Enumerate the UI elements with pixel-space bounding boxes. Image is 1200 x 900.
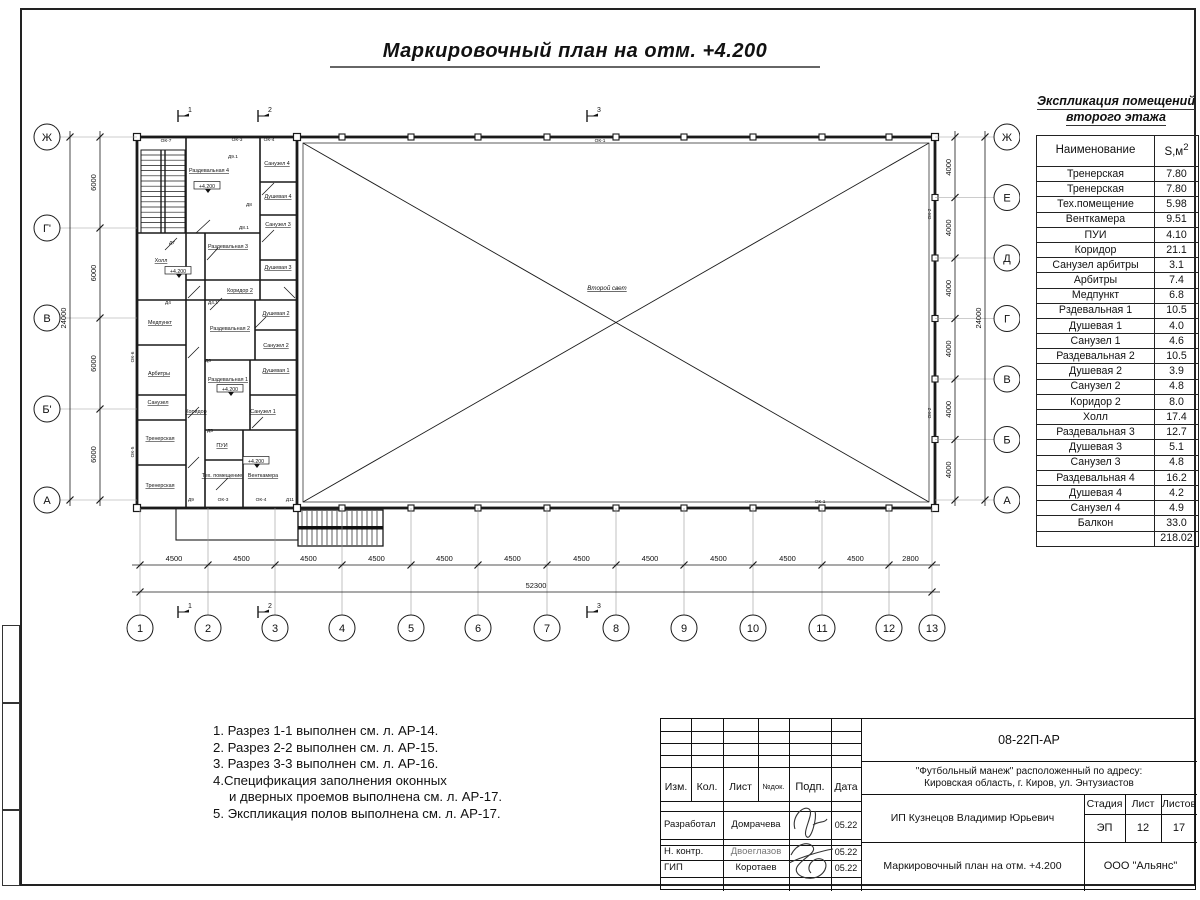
room-label: Душевая 3 bbox=[264, 265, 291, 271]
dim-label: 4000 bbox=[944, 340, 953, 357]
note-line: 3. Разрез 3-3 выполнен см. л. АР-16. bbox=[213, 756, 502, 773]
room-name: Раздевальная 3 bbox=[1037, 425, 1155, 440]
opening-tag: ОК-1 bbox=[815, 499, 826, 505]
dim-label: 4500 bbox=[300, 554, 317, 563]
explication-row: Санузел 24.8 bbox=[1037, 379, 1199, 394]
axis-label: 11 bbox=[816, 623, 827, 635]
opening-tag: ОК-1 bbox=[595, 138, 606, 144]
room-area: 4.8 bbox=[1155, 455, 1199, 470]
room-area: 8.0 bbox=[1155, 394, 1199, 409]
opening-tag: Д9 bbox=[188, 497, 194, 503]
tb-role-ncontr: Н. контр. bbox=[661, 845, 726, 860]
drawing-sheet: { "sheet": { "title": "Маркировочный пла… bbox=[0, 0, 1200, 900]
room-area: 3.9 bbox=[1155, 364, 1199, 379]
axis-label: 6 bbox=[475, 623, 481, 635]
axis-label: Б bbox=[1003, 435, 1010, 447]
dim-label: 4500 bbox=[642, 554, 659, 563]
tb-date-developer: 05.22 bbox=[831, 812, 861, 838]
page-title: Маркировочный план на отм. +4.200 bbox=[330, 40, 820, 68]
opening-tag: Д11 bbox=[286, 497, 295, 503]
room-label: Медпункт bbox=[148, 320, 173, 326]
room-label: Раздевальная 3 bbox=[208, 244, 248, 250]
room-area: 4.6 bbox=[1155, 334, 1199, 349]
room-area: 21.1 bbox=[1155, 242, 1199, 257]
col-header-area: S,м2 bbox=[1155, 136, 1199, 167]
axis-label: Г' bbox=[43, 223, 51, 235]
balcony bbox=[176, 508, 298, 540]
room-label: Санузел bbox=[148, 400, 169, 406]
axis-label: 3 bbox=[272, 623, 278, 635]
room-name: Арбитры bbox=[1037, 273, 1155, 288]
axis-label: 1 bbox=[137, 623, 143, 635]
room-name: Душевая 2 bbox=[1037, 364, 1155, 379]
note-line: 1. Разрез 1-1 выполнен см. л. АР-14. bbox=[213, 723, 502, 740]
axis-label: 12 bbox=[883, 623, 895, 635]
level-mark: +4.200 bbox=[199, 184, 215, 190]
tb-col-kol: Кол. bbox=[691, 774, 723, 800]
room-label: Коридор 2 bbox=[227, 288, 253, 294]
tb-project: "Футбольный манеж" расположенный по адре… bbox=[861, 761, 1197, 794]
axis-label: Ж bbox=[1002, 132, 1012, 144]
notes-list: 1. Разрез 1-1 выполнен см. л. АР-14.2. Р… bbox=[213, 723, 502, 822]
room-name: Коридор bbox=[1037, 242, 1155, 257]
dim-label: 6000 bbox=[89, 355, 98, 372]
axis-label: Ж bbox=[42, 132, 52, 144]
tb-date-ncontr: 05.22 bbox=[831, 845, 861, 860]
explication-row: Коридор21.1 bbox=[1037, 242, 1199, 257]
axis-label: Г bbox=[1004, 314, 1010, 326]
room-area: 218.02 bbox=[1155, 531, 1199, 546]
room-label: ПУИ bbox=[216, 443, 227, 449]
axis-label: Е bbox=[1003, 193, 1010, 205]
tb-name-developer: Домрачева bbox=[723, 812, 789, 838]
explication: Экспликация помещений второго этажа Наим… bbox=[1036, 94, 1196, 547]
note-line: 4.Спецификация заполнения оконных bbox=[213, 773, 502, 790]
explication-table: Наименование S,м2 Тренерская7.80Тренерск… bbox=[1036, 135, 1199, 547]
room-name: Раздевальная 4 bbox=[1037, 470, 1155, 485]
explication-row: Душевая 14.0 bbox=[1037, 318, 1199, 333]
tb-col-data: Дата bbox=[831, 774, 861, 800]
room-area: 4.0 bbox=[1155, 318, 1199, 333]
explication-row: Раздевальная 416.2 bbox=[1037, 470, 1199, 485]
room-name: Коридор 2 bbox=[1037, 394, 1155, 409]
tb-name-gip: Коротаев bbox=[723, 860, 789, 877]
explication-title: Экспликация помещений второго этажа bbox=[1036, 94, 1196, 126]
axis-label: 10 bbox=[747, 623, 759, 635]
explication-row: 218.02 bbox=[1037, 531, 1199, 546]
opening-tag: Д4.1 bbox=[208, 300, 218, 306]
room-name bbox=[1037, 531, 1155, 546]
dim-label: 6000 bbox=[89, 174, 98, 191]
tb-sheet-title: Маркировочный план на отм. +4.200 bbox=[861, 842, 1084, 891]
tb-date-gip: 05.22 bbox=[831, 860, 861, 877]
dim-label: 4500 bbox=[368, 554, 385, 563]
opening-tag: ОК-4 bbox=[256, 497, 267, 503]
opening-tag: ОК-2 bbox=[927, 407, 933, 418]
opening-tag: ОК-5 bbox=[130, 446, 136, 457]
axis-label: 9 bbox=[681, 623, 687, 635]
axis-label: А bbox=[1003, 495, 1011, 507]
room-area: 4.2 bbox=[1155, 485, 1199, 500]
room-area: 5.1 bbox=[1155, 440, 1199, 455]
room-area: 33.0 bbox=[1155, 516, 1199, 531]
room-area: 7.80 bbox=[1155, 167, 1199, 182]
axis-label: Б' bbox=[42, 404, 51, 416]
tb-col-podp: Подп. bbox=[789, 774, 831, 800]
axis-label: 4 bbox=[339, 623, 345, 635]
opening-tag: Д8.1 bbox=[239, 225, 249, 231]
explication-row: Раздевальная 312.7 bbox=[1037, 425, 1199, 440]
tb-client: ИП Кузнецов Владимир Юрьевич bbox=[861, 794, 1084, 842]
explication-row: Тех.помещение5.98 bbox=[1037, 197, 1199, 212]
explication-row: Тренерская7.80 bbox=[1037, 167, 1199, 182]
explication-row: Медпункт6.8 bbox=[1037, 288, 1199, 303]
section-mark-label: 1 bbox=[188, 107, 192, 114]
room-area: 3.1 bbox=[1155, 258, 1199, 273]
room-label: Раздевальная 4 bbox=[189, 168, 229, 174]
opening-tag: ОК-6 bbox=[130, 351, 136, 362]
explication-row: Арбитры7.4 bbox=[1037, 273, 1199, 288]
room-label: Тренерская bbox=[145, 436, 174, 442]
note-line: 5. Экспликация полов выполнена см. л. АР… bbox=[213, 806, 502, 823]
room-area: 4.9 bbox=[1155, 501, 1199, 516]
opening-tag: Д7 bbox=[169, 240, 175, 246]
level-mark: +4.200 bbox=[170, 269, 186, 275]
dim-label: 4500 bbox=[166, 554, 183, 563]
section-mark-label: 3 bbox=[597, 603, 601, 610]
opening-tag: ОК-4 bbox=[264, 137, 275, 143]
axis-label: 2 bbox=[205, 623, 211, 635]
dim-label: 4500 bbox=[436, 554, 453, 563]
opening-tag: Д5 bbox=[207, 428, 213, 434]
explication-row: Рздевальная 110.5 bbox=[1037, 303, 1199, 318]
room-name: Рздевальная 1 bbox=[1037, 303, 1155, 318]
room-label: Раздевальная 2 bbox=[210, 326, 250, 332]
room-label: Арбитры bbox=[148, 371, 170, 377]
opening-tag: ОК-3 bbox=[218, 497, 229, 503]
tb-sheets-label: Листов bbox=[1161, 794, 1197, 814]
explication-row: Коридор 28.0 bbox=[1037, 394, 1199, 409]
explication-row: Санузел 34.8 bbox=[1037, 455, 1199, 470]
room-name: Балкон bbox=[1037, 516, 1155, 531]
room-name: Душевая 1 bbox=[1037, 318, 1155, 333]
opening-tag: Д4 bbox=[165, 300, 171, 306]
explication-row: Санузел арбитры3.1 bbox=[1037, 258, 1199, 273]
tb-col-izm: Изм. bbox=[661, 774, 691, 800]
room-area: 5.98 bbox=[1155, 197, 1199, 212]
room-name: Тренерская bbox=[1037, 182, 1155, 197]
dim-label: 4500 bbox=[710, 554, 727, 563]
room-area: 16.2 bbox=[1155, 470, 1199, 485]
explication-row: ПУИ4.10 bbox=[1037, 227, 1199, 242]
axis-label: 7 bbox=[544, 623, 550, 635]
tb-col-ndoc: №док. bbox=[758, 774, 789, 800]
dim-label: 4500 bbox=[233, 554, 250, 563]
tb-stage: ЭП bbox=[1084, 814, 1125, 842]
margin-box bbox=[2, 625, 20, 703]
margin-box bbox=[2, 703, 20, 810]
axis-label: 5 bbox=[408, 623, 414, 635]
room-area: 4.10 bbox=[1155, 227, 1199, 242]
axis-label: 8 bbox=[613, 623, 619, 635]
room-label: Холл bbox=[155, 258, 168, 264]
dim-label: 6000 bbox=[89, 446, 98, 463]
room-area: 7.80 bbox=[1155, 182, 1199, 197]
section-mark-label: 3 bbox=[597, 107, 601, 114]
room-label: Тренерская bbox=[145, 483, 174, 489]
room-name: Санузел 4 bbox=[1037, 501, 1155, 516]
explication-row: Душевая 44.2 bbox=[1037, 485, 1199, 500]
room-name: Санузел 1 bbox=[1037, 334, 1155, 349]
explication-row: Венткамера9.51 bbox=[1037, 212, 1199, 227]
room-label: Венткамера bbox=[248, 473, 278, 479]
opening-tag: Д8 bbox=[246, 202, 252, 208]
explication-row: Санузел 14.6 bbox=[1037, 334, 1199, 349]
dim-label: 2800 bbox=[902, 554, 919, 563]
explication-row: Душевая 35.1 bbox=[1037, 440, 1199, 455]
opening-tag: Д6 bbox=[205, 358, 211, 364]
title-block: Изм. Кол. Лист №док. Подп. Дата Разработ… bbox=[660, 718, 1196, 890]
tb-sheets: 17 bbox=[1161, 814, 1197, 842]
tb-role-developer: Разработал bbox=[661, 812, 726, 838]
note-line: 2. Разрез 2-2 выполнен см. л. АР-15. bbox=[213, 740, 502, 757]
room-name: Венткамера bbox=[1037, 212, 1155, 227]
opening-tag: ОК-2 bbox=[927, 208, 933, 219]
note-line: и дверных проемов выполнена см. л. АР-17… bbox=[213, 789, 502, 806]
room-label: Санузел 1 bbox=[250, 409, 276, 415]
level-mark: +4.200 bbox=[222, 387, 238, 393]
room-label: Санузел 3 bbox=[265, 222, 291, 228]
opening-tag: ОК-3 bbox=[232, 137, 243, 143]
building-outline bbox=[137, 137, 935, 508]
room-label: Коридор bbox=[185, 409, 206, 415]
room-area: 10.5 bbox=[1155, 303, 1199, 318]
explication-row: Санузел 44.9 bbox=[1037, 501, 1199, 516]
axis-label: 13 bbox=[926, 623, 938, 635]
room-label: Душевая 1 bbox=[262, 368, 289, 374]
room-name: Санузел арбитры bbox=[1037, 258, 1155, 273]
room-label: Тех. помещение bbox=[202, 473, 243, 479]
explication-row: Раздевальная 210.5 bbox=[1037, 349, 1199, 364]
tb-stage-label: Стадия bbox=[1084, 794, 1125, 814]
tb-col-list: Лист bbox=[723, 774, 758, 800]
room-name: Душевая 4 bbox=[1037, 485, 1155, 500]
axis-label: А bbox=[43, 495, 51, 507]
opening-tag: Д9.1 bbox=[228, 154, 238, 160]
dim-label: 4000 bbox=[944, 401, 953, 418]
room-name: Тренерская bbox=[1037, 167, 1155, 182]
room-area: 4.8 bbox=[1155, 379, 1199, 394]
room-name: Медпункт bbox=[1037, 288, 1155, 303]
dim-label: 4000 bbox=[944, 461, 953, 478]
staircase-external bbox=[298, 510, 383, 546]
dim-label: 4000 bbox=[944, 280, 953, 297]
room-area: 12.7 bbox=[1155, 425, 1199, 440]
tb-role-gip: ГИП bbox=[661, 860, 726, 877]
room-name: Санузел 2 bbox=[1037, 379, 1155, 394]
room-area: 7.4 bbox=[1155, 273, 1199, 288]
explication-row: Душевая 23.9 bbox=[1037, 364, 1199, 379]
opening-tag: ОК-7 bbox=[161, 138, 172, 144]
dim-label: 6000 bbox=[89, 265, 98, 282]
tb-company: ООО "Альянс" bbox=[1084, 842, 1197, 891]
dim-label: 4500 bbox=[573, 554, 590, 563]
room-name: Тех.помещение bbox=[1037, 197, 1155, 212]
section-mark-label: 2 bbox=[268, 107, 272, 114]
margin-box bbox=[2, 810, 20, 886]
col-header-name: Наименование bbox=[1037, 136, 1155, 167]
room-label: Санузел 4 bbox=[264, 161, 290, 167]
room-name: Холл bbox=[1037, 410, 1155, 425]
dim-label: 4000 bbox=[944, 219, 953, 236]
explication-row: Холл17.4 bbox=[1037, 410, 1199, 425]
tb-doc-number: 08-22П-АР bbox=[861, 719, 1197, 761]
room-name: ПУИ bbox=[1037, 227, 1155, 242]
room-area: 9.51 bbox=[1155, 212, 1199, 227]
tb-name-ncontr: Двоеглазов bbox=[723, 845, 789, 860]
tb-sheet: 12 bbox=[1125, 814, 1161, 842]
explication-row: Тренерская7.80 bbox=[1037, 182, 1199, 197]
section-mark-label: 2 bbox=[268, 603, 272, 610]
axis-label: Д bbox=[1003, 253, 1011, 265]
section-mark-label: 1 bbox=[188, 603, 192, 610]
room-name: Раздевальная 2 bbox=[1037, 349, 1155, 364]
void-label: Второй свет bbox=[587, 285, 626, 292]
dim-label: 4500 bbox=[847, 554, 864, 563]
room-name: Санузел 3 bbox=[1037, 455, 1155, 470]
room-area: 17.4 bbox=[1155, 410, 1199, 425]
dim-label: 4000 bbox=[944, 159, 953, 176]
staircase-internal bbox=[141, 150, 185, 233]
dim-label: 24000 bbox=[974, 308, 983, 329]
dim-label: 4500 bbox=[779, 554, 796, 563]
axis-label: В bbox=[1003, 374, 1010, 386]
room-label: Душевая 2 bbox=[262, 311, 289, 317]
level-mark: +4.200 bbox=[248, 459, 264, 465]
explication-row: Балкон33.0 bbox=[1037, 516, 1199, 531]
signature-gip bbox=[787, 837, 835, 889]
room-label: Раздевальная 1 bbox=[208, 377, 248, 383]
room-area: 10.5 bbox=[1155, 349, 1199, 364]
dim-label: 4500 bbox=[504, 554, 521, 563]
room-area: 6.8 bbox=[1155, 288, 1199, 303]
tb-sheet-label: Лист bbox=[1125, 794, 1161, 814]
room-label: Душевая 4 bbox=[264, 194, 291, 200]
floor-plan: 4500450045004500450045004500450045004500… bbox=[30, 95, 1020, 655]
dim-label: 52300 bbox=[526, 581, 547, 590]
room-label: Санузел 2 bbox=[263, 343, 289, 349]
axis-label: В bbox=[43, 313, 50, 325]
room-name: Душевая 3 bbox=[1037, 440, 1155, 455]
